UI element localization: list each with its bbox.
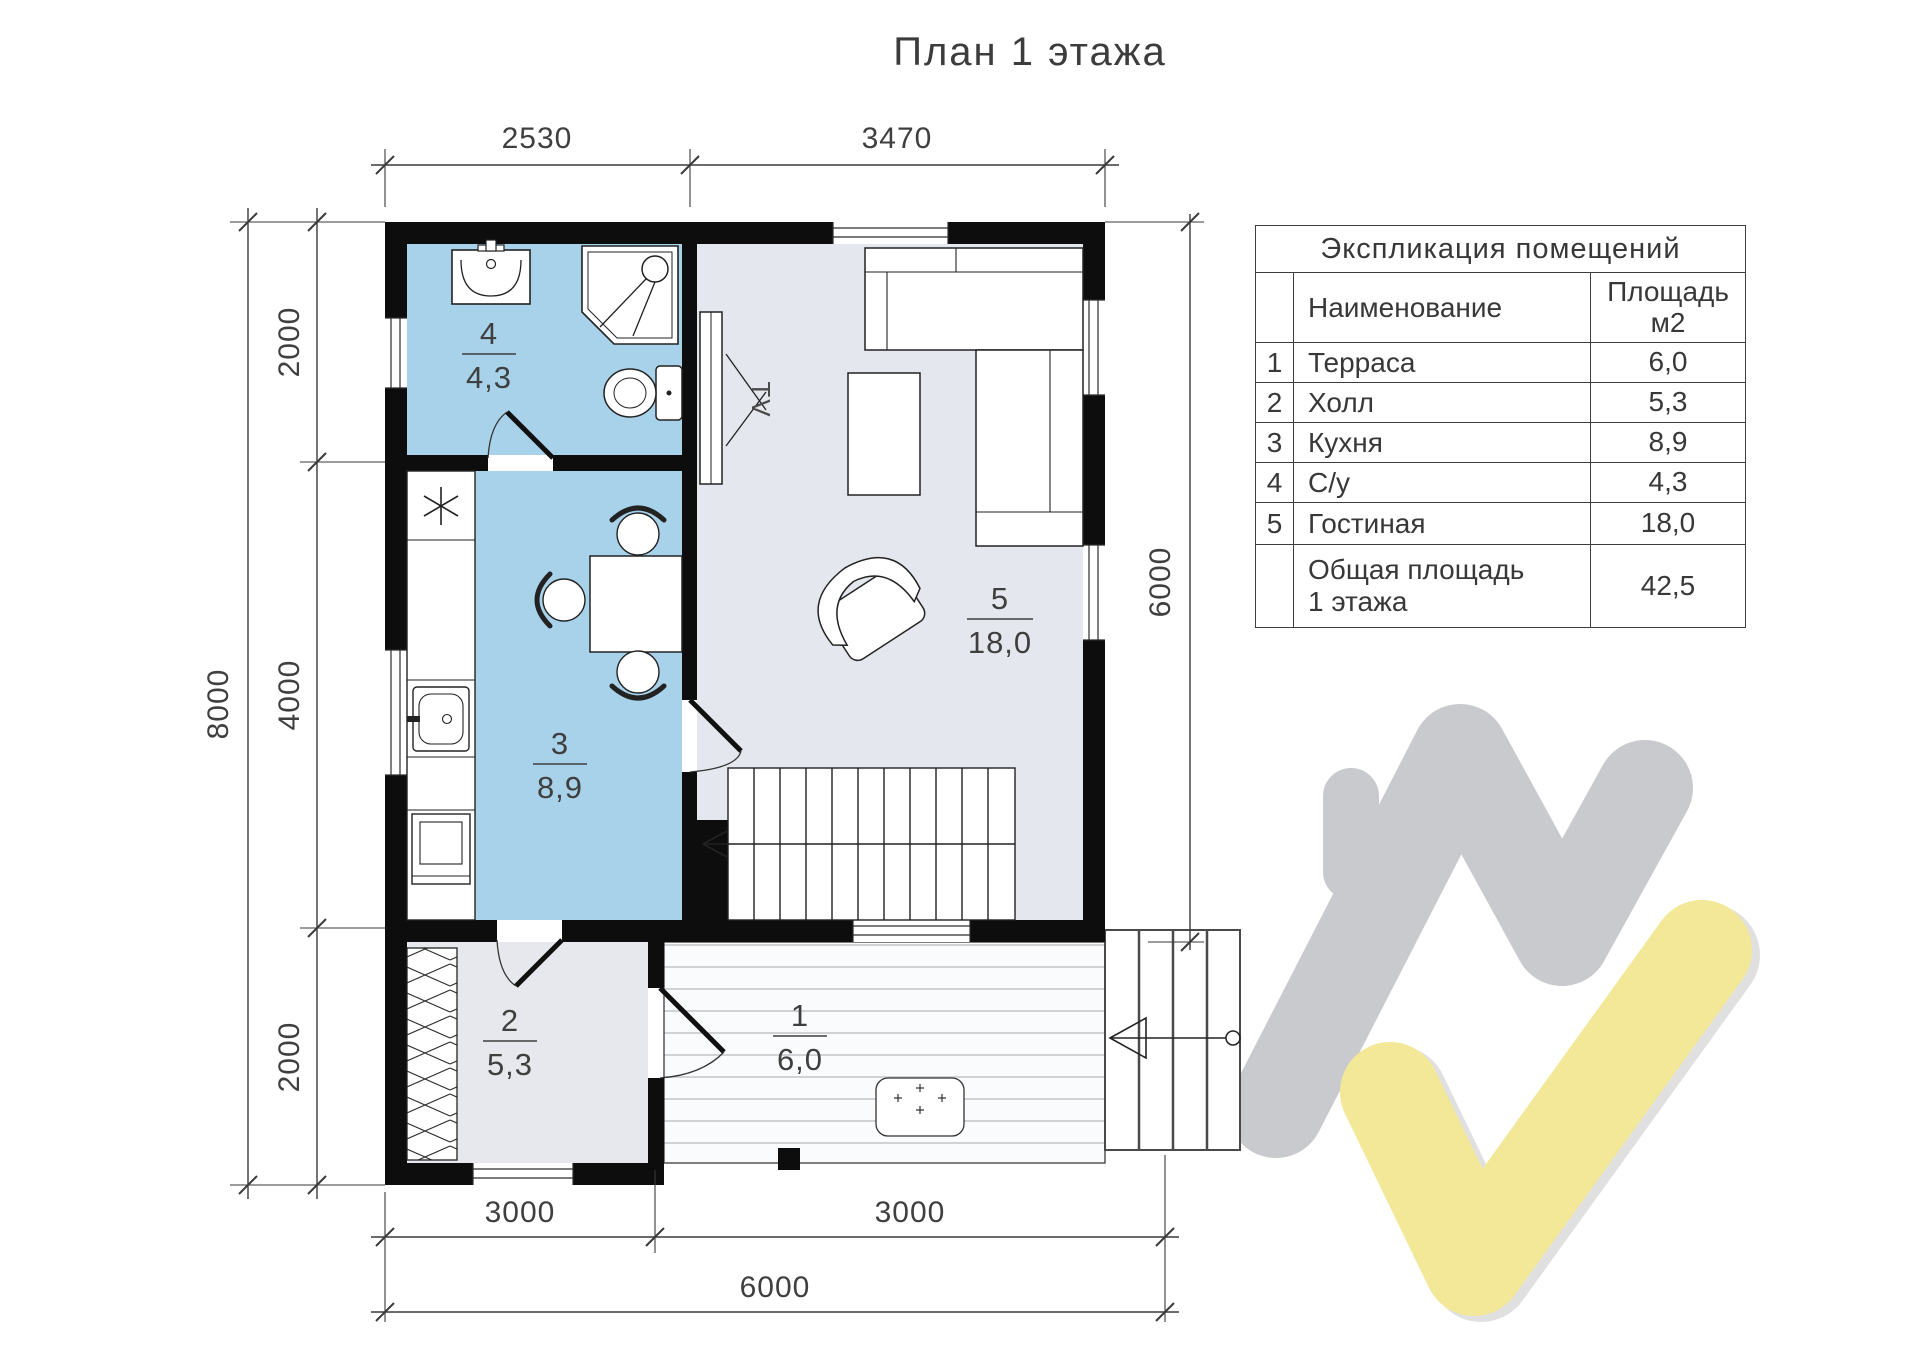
stairs	[703, 768, 1015, 920]
header-name-cell: Наименование	[1294, 273, 1591, 343]
total-area-cell: 42,5	[1591, 545, 1746, 628]
table-row: 5 Гостиная 18,0	[1256, 503, 1746, 545]
coffee-table	[848, 373, 920, 495]
svg-text:18,0: 18,0	[968, 625, 1032, 660]
svg-text:2000: 2000	[273, 1022, 306, 1093]
svg-text:4000: 4000	[273, 660, 306, 731]
svg-text:3470: 3470	[862, 122, 933, 155]
explication-table: Экспликация помещений Наименование Площа…	[1255, 225, 1746, 628]
svg-text:3: 3	[551, 726, 569, 761]
wardrobe-hatched	[407, 948, 457, 1160]
window-bathroom	[385, 318, 407, 388]
table-title: Экспликация помещений	[1256, 226, 1746, 273]
header-num-cell	[1256, 273, 1294, 343]
window-kitchen	[385, 650, 407, 775]
dining-table	[590, 556, 682, 652]
window-living-right-lower	[1083, 545, 1105, 640]
svg-text:8000: 8000	[202, 669, 235, 740]
table-row: 1 Терраса 6,0	[1256, 343, 1746, 383]
floor-plan-drawing: 4 4,3 3 8,9 5 18,0 2 5,3 1 6,0 TV	[0, 0, 1920, 1357]
total-label-cell: Общая площадь 1 этажа	[1294, 545, 1591, 628]
table-header-row: Наименование Площадь м2	[1256, 273, 1746, 343]
doormat	[876, 1078, 964, 1136]
dim-top	[371, 156, 1119, 174]
entrance-door-terrace	[853, 920, 970, 942]
svg-text:1: 1	[791, 998, 809, 1033]
table-total-row: Общая площадь 1 этажа 42,5	[1256, 545, 1746, 628]
svg-text:4,3: 4,3	[466, 360, 512, 395]
dim-left-inner	[308, 208, 326, 1199]
svg-text:3000: 3000	[485, 1196, 556, 1229]
table-row: 2 Холл 5,3	[1256, 383, 1746, 423]
dim-bottom-total	[371, 1303, 1179, 1321]
svg-text:3000: 3000	[875, 1196, 946, 1229]
svg-text:2530: 2530	[502, 122, 573, 155]
sink-icon	[452, 240, 530, 304]
svg-text:5,3: 5,3	[487, 1047, 533, 1082]
dim-bottom	[371, 1228, 1179, 1246]
window-living-right-upper	[1083, 300, 1105, 395]
logo-watermark	[1276, 752, 1709, 1271]
svg-text:2: 2	[501, 1003, 519, 1038]
svg-text:6000: 6000	[740, 1271, 811, 1304]
svg-text:8,9: 8,9	[537, 770, 583, 805]
dim-left-outer	[239, 208, 257, 1199]
svg-text:6000: 6000	[1144, 547, 1177, 618]
svg-text:6,0: 6,0	[777, 1042, 823, 1077]
svg-text:2000: 2000	[273, 307, 306, 378]
kitchen-sink-icon	[407, 687, 469, 751]
svg-text:4: 4	[480, 316, 498, 351]
oven-icon	[412, 814, 470, 884]
window-hall-bottom	[473, 1163, 573, 1185]
table-row: 4 С/у 4,3	[1256, 463, 1746, 503]
entry-steps	[1105, 930, 1240, 1150]
table-row: 3 Кухня 8,9	[1256, 423, 1746, 463]
toilet-icon	[604, 366, 682, 420]
table-title-row: Экспликация помещений	[1256, 226, 1746, 273]
header-area-cell: Площадь м2	[1591, 273, 1746, 343]
svg-text:5: 5	[991, 581, 1009, 616]
tv-label: TV	[746, 381, 776, 418]
window-living-top	[833, 222, 948, 244]
dim-right	[1181, 213, 1199, 951]
